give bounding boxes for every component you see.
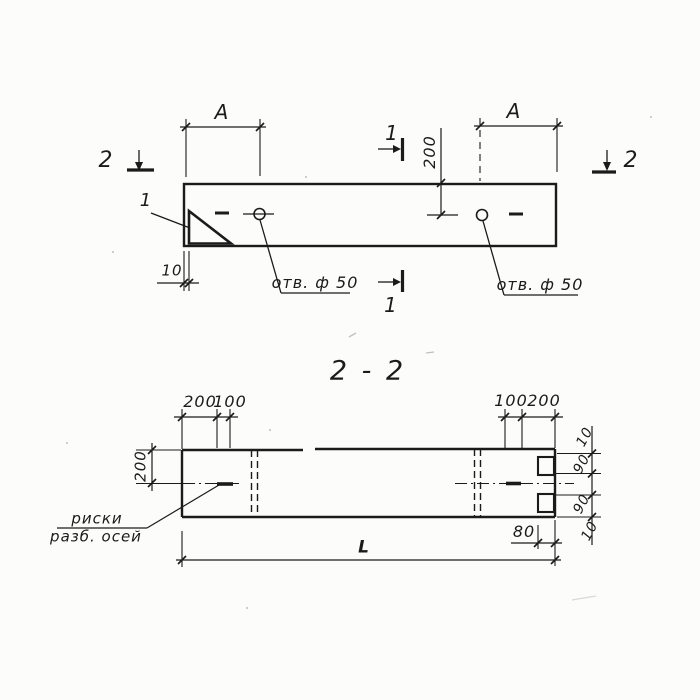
dim-80-label: 80	[513, 524, 535, 540]
section-mark-1-top-label: 1	[385, 123, 399, 143]
dim-length-label: L	[358, 540, 370, 557]
dim-a-left-lines	[180, 119, 266, 177]
section-mark-2-left-lines	[127, 150, 154, 171]
dim-tl-100-label: 100	[213, 394, 247, 410]
section-mark-2-left-label: 2	[99, 150, 114, 172]
section-mark-1-bottom-label: 1	[384, 295, 398, 315]
axis-label-line2: разб. осей	[50, 530, 142, 545]
detail-mark-label: 1	[140, 192, 152, 210]
hole-callout-left: отв. ф 50	[272, 275, 359, 291]
top-view-linework	[127, 118, 616, 295]
section-mark-2-right-lines	[592, 150, 616, 172]
axis-label-line1: риски	[71, 512, 122, 527]
drawing-linework	[0, 0, 700, 700]
dim-a-right-label: А	[507, 101, 522, 121]
beam-outline	[184, 184, 556, 246]
dim-a-right-lines	[474, 118, 563, 181]
drawing-sheet: А А 200 2 2 1 1 1 отв. ф 50 отв. ф 50 10…	[0, 0, 700, 700]
dim-a-left-label: А	[215, 102, 230, 122]
hole-callout-right: отв. ф 50	[497, 277, 584, 293]
corner-plate-triangle	[189, 211, 231, 244]
dim-10-label: 10	[161, 264, 182, 279]
dim-tr-100-label: 100	[494, 393, 528, 409]
dim-tr-200-label: 200	[527, 393, 561, 409]
dims-top-right-lines	[498, 409, 563, 448]
dim-tl-200-label: 200	[183, 394, 217, 410]
dim-height-label: 200	[134, 450, 149, 482]
notch-lower	[538, 494, 554, 512]
section-title: 2 - 2	[330, 358, 406, 385]
hole-circle-right	[477, 210, 488, 221]
notch-upper	[538, 457, 554, 475]
dims-top-left-lines	[174, 409, 238, 449]
section-mark-1-bottom-lines	[378, 270, 403, 292]
section-mark-2-right-label: 2	[624, 150, 639, 172]
dim-200-top-label: 200	[422, 135, 438, 169]
hidden-lines	[252, 449, 481, 517]
axis-centerlines	[183, 484, 574, 485]
